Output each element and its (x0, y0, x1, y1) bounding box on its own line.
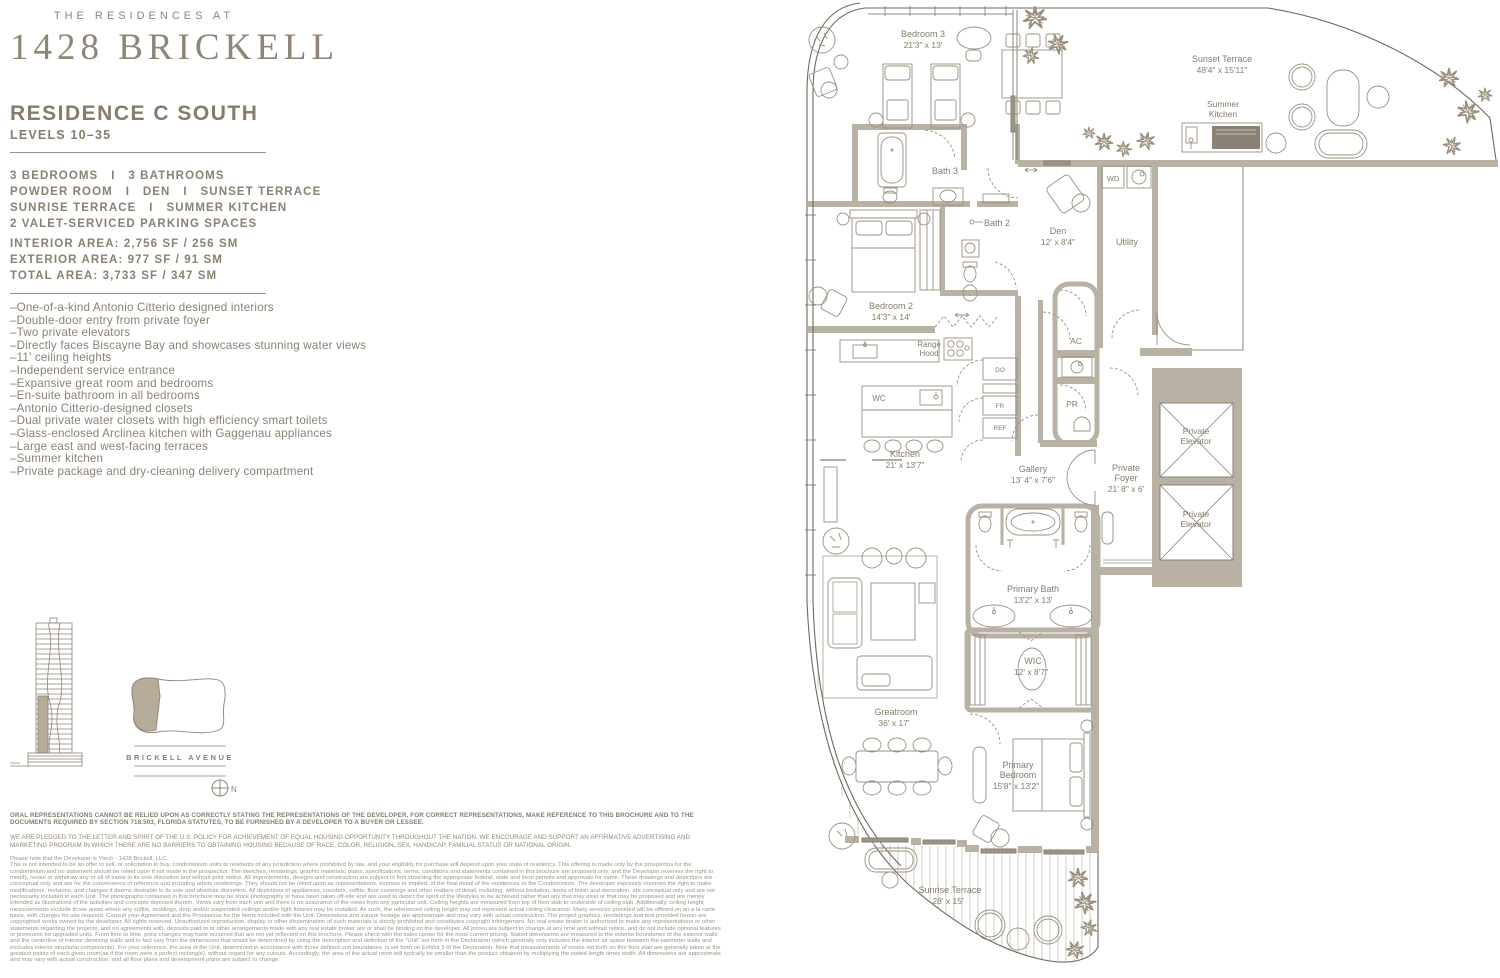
compass-north-label: N (231, 785, 237, 794)
label-greatroom: Greatroom (874, 707, 917, 717)
label-primary-bedroom-2: Bedroom (1000, 770, 1037, 780)
feature-item: –En-suite bathroom in all bedrooms (10, 390, 366, 402)
label-bedroom3-dims: 21'3" x 13' (904, 40, 943, 50)
label-primary-bath-dims: 13'2" x 13' (1014, 595, 1053, 605)
label-bedroom2-dims: 14'3" x 14' (872, 312, 911, 322)
residence-areas: INTERIOR AREA: 2,756 SF / 256 SMEXTERIOR… (10, 236, 238, 284)
label-private-foyer-dims: 21' 8" x 6' (1108, 484, 1145, 494)
feature-item: –Independent service entrance (10, 365, 366, 377)
spec-line: 3 BEDROOMS I 3 BATHROOMS (10, 168, 321, 184)
label-range-hood-2: Hood (919, 349, 938, 358)
label-bedroom2: Bedroom 2 (869, 301, 913, 311)
label-sunrise-terrace-dims: 28' x 15' (932, 896, 964, 906)
label-sunset-terrace: Sunset Terrace (1192, 54, 1252, 64)
site-key-graphics: BRICKELL AVENUE N (10, 608, 260, 803)
feature-item: –11' ceiling heights (10, 352, 366, 364)
residence-levels: LEVELS 10–35 (10, 128, 111, 142)
brand-name: 1428 BRICKELL (10, 26, 278, 69)
info-panel: THE RESIDENCES AT 1428 BRICKELL RESIDENC… (10, 10, 780, 69)
residence-specs: 3 BEDROOMS I 3 BATHROOMSPOWDER ROOM I DE… (10, 168, 321, 232)
label-gallery-dims: 13' 4" x 7'6" (1011, 475, 1055, 485)
area-line: INTERIOR AREA: 2,756 SF / 256 SM (10, 236, 238, 252)
label-ac: AC (1070, 336, 1082, 346)
fair-housing-statement: WE ARE PLEDGED TO THE LETTER AND SPIRIT … (10, 834, 722, 848)
label-kitchen-dims: 21' x 13'7" (886, 460, 925, 470)
label-gallery: Gallery (1019, 464, 1048, 474)
rounded-wall-enclosures (967, 284, 1098, 710)
site-plan-key: BRICKELL AVENUE (126, 678, 234, 776)
label-fr: FR (996, 403, 1005, 410)
label-wic: WIC (1024, 656, 1042, 666)
site-key-svg: BRICKELL AVENUE N (10, 608, 260, 798)
spec-line: 2 VALET-SERVICED PARKING SPACES (10, 216, 321, 232)
feature-item: –Double-door entry from private foyer (10, 315, 366, 327)
label-den: Den (1050, 226, 1067, 236)
area-line: TOTAL AREA: 3,733 SF / 347 SM (10, 268, 238, 284)
label-primary-bath: Primary Bath (1007, 584, 1059, 594)
label-private-elevator-2: Private (1183, 509, 1210, 519)
divider (10, 152, 266, 153)
fine-print-body: This is not intended to be an offer to s… (10, 862, 721, 963)
legal-footer: ORAL REPRESENTATIONS CANNOT BE RELIED UP… (10, 812, 722, 964)
unit-location-highlight (132, 678, 160, 731)
label-wic-dims: 12' x 8'7" (1014, 667, 1048, 677)
label-do: DO (995, 367, 1005, 374)
floorplan-brochure-page: { "brand": { "tagline": "THE RESIDENCES … (0, 0, 1500, 973)
label-utility: Utility (1116, 237, 1138, 247)
label-wd: WD (1107, 174, 1120, 183)
feature-item: –Dual private water closets with high ef… (10, 415, 366, 427)
spec-line: POWDER ROOM I DEN I SUNSET TERRACE (10, 184, 321, 200)
floorplan-svg: Bedroom 3 21'3" x 13' Bath 3 Bath 2 Bedr… (790, 0, 1500, 973)
developer-note: Please note that the Developer is Ytech … (10, 856, 168, 862)
feature-item: –Two private elevators (10, 327, 366, 339)
label-summer-kitchen: Summer (1207, 99, 1239, 109)
divider (10, 293, 266, 294)
label-wc: WC (872, 394, 886, 403)
brand-logo: THE RESIDENCES AT 1428 BRICKELL (10, 10, 278, 69)
label-private-elevator-2b: Elevator (1180, 519, 1211, 529)
feature-item: –Summer kitchen (10, 453, 366, 465)
brand-tagline: THE RESIDENCES AT (10, 10, 278, 22)
fine-print: Please note that the Developer is Ytech … (10, 856, 722, 964)
feature-item: –Directly faces Biscayne Bay and showcas… (10, 340, 366, 352)
spec-line: SUNRISE TERRACE I SUMMER KITCHEN (10, 200, 321, 216)
oral-representations-disclaimer: ORAL REPRESENTATIONS CANNOT BE RELIED UP… (10, 812, 722, 826)
building-elevation-icon (10, 618, 82, 766)
feature-list: –One-of-a-kind Antonio Citterio designed… (10, 302, 366, 478)
label-private-foyer: Private (1112, 463, 1140, 473)
label-bath3: Bath 3 (932, 166, 958, 176)
label-bedroom3: Bedroom 3 (901, 29, 945, 39)
label-greatroom-dims: 36' x 17' (878, 718, 910, 728)
building-outline (805, 3, 1496, 962)
label-summer-kitchen-2: Kitchen (1209, 109, 1238, 119)
label-range-hood: Range (917, 340, 941, 349)
feature-item: –One-of-a-kind Antonio Citterio designed… (10, 302, 366, 314)
area-line: EXTERIOR AREA: 977 SF / 91 SM (10, 252, 238, 268)
label-ref: REF (994, 425, 1007, 432)
label-primary-bedroom-dims: 15'8" x 13'2" (993, 781, 1040, 791)
label-bath2: Bath 2 (984, 218, 1010, 228)
feature-item: –Expansive great room and bedrooms (10, 378, 366, 390)
feature-item: –Large east and west-facing terraces (10, 441, 366, 453)
label-sunrise-terrace: Sunrise Terrace (919, 885, 982, 895)
feature-item: –Antonio Citterio-designed closets (10, 403, 366, 415)
residence-title: RESIDENCE C SOUTH (10, 102, 258, 126)
label-private-elevator-1b: Elevator (1180, 436, 1211, 446)
feature-item: –Private package and dry-cleaning delive… (10, 466, 366, 478)
label-kitchen: Kitchen (890, 449, 920, 459)
label-private-foyer-2: Foyer (1114, 473, 1137, 483)
label-private-elevator-1: Private (1183, 426, 1210, 436)
street-label: BRICKELL AVENUE (126, 753, 234, 762)
feature-item: –Glass-enclosed Arclinea kitchen with Ga… (10, 428, 366, 440)
floorplan: Bedroom 3 21'3" x 13' Bath 3 Bath 2 Bedr… (790, 0, 1500, 973)
compass-icon: N (212, 780, 237, 796)
label-den-dims: 12' x 8'4" (1041, 237, 1075, 247)
label-pr: PR (1066, 399, 1078, 409)
label-primary-bedroom: Primary (1003, 760, 1034, 770)
label-sunset-terrace-dims: 48'4" x 15'11" (1197, 65, 1248, 75)
